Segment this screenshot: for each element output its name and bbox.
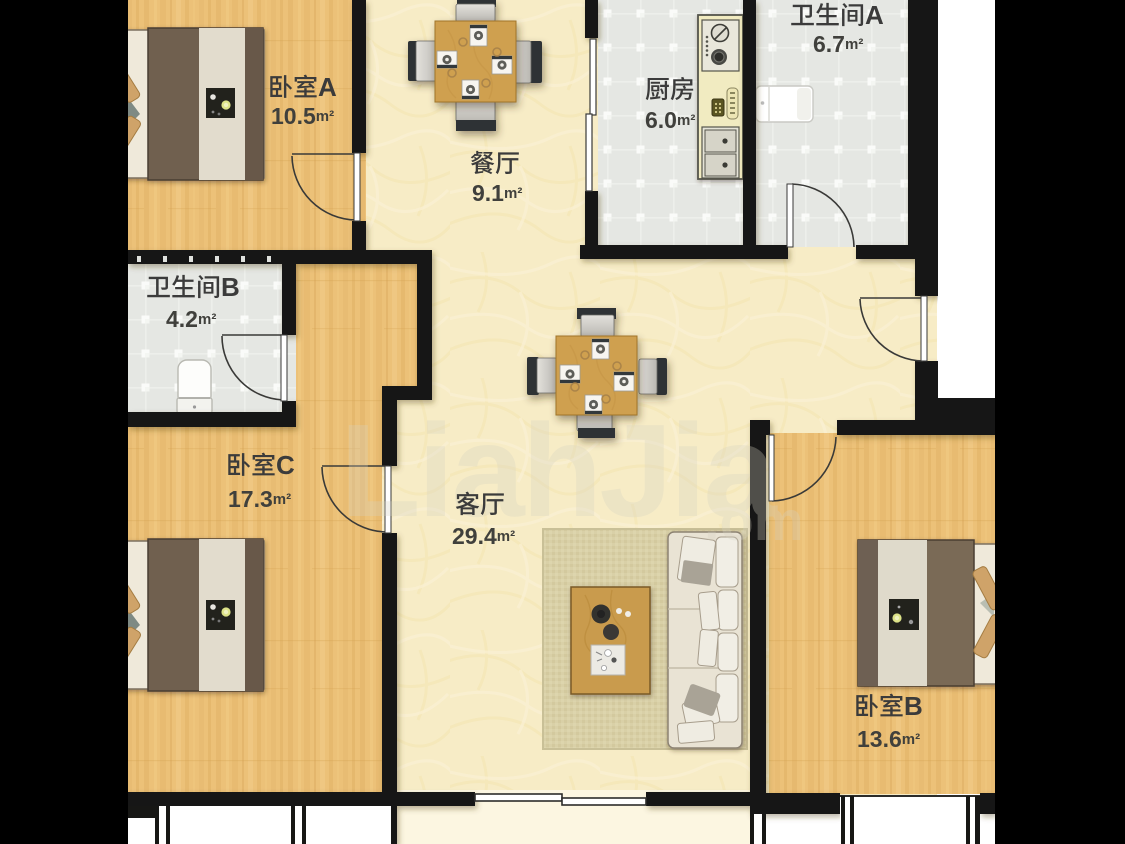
svg-text:B: B bbox=[904, 691, 923, 721]
svg-text:A: A bbox=[318, 72, 337, 102]
svg-text:C: C bbox=[276, 450, 295, 480]
svg-text:.om: .om bbox=[704, 489, 804, 552]
svg-text:A: A bbox=[865, 0, 884, 30]
svg-text:B: B bbox=[221, 272, 240, 302]
